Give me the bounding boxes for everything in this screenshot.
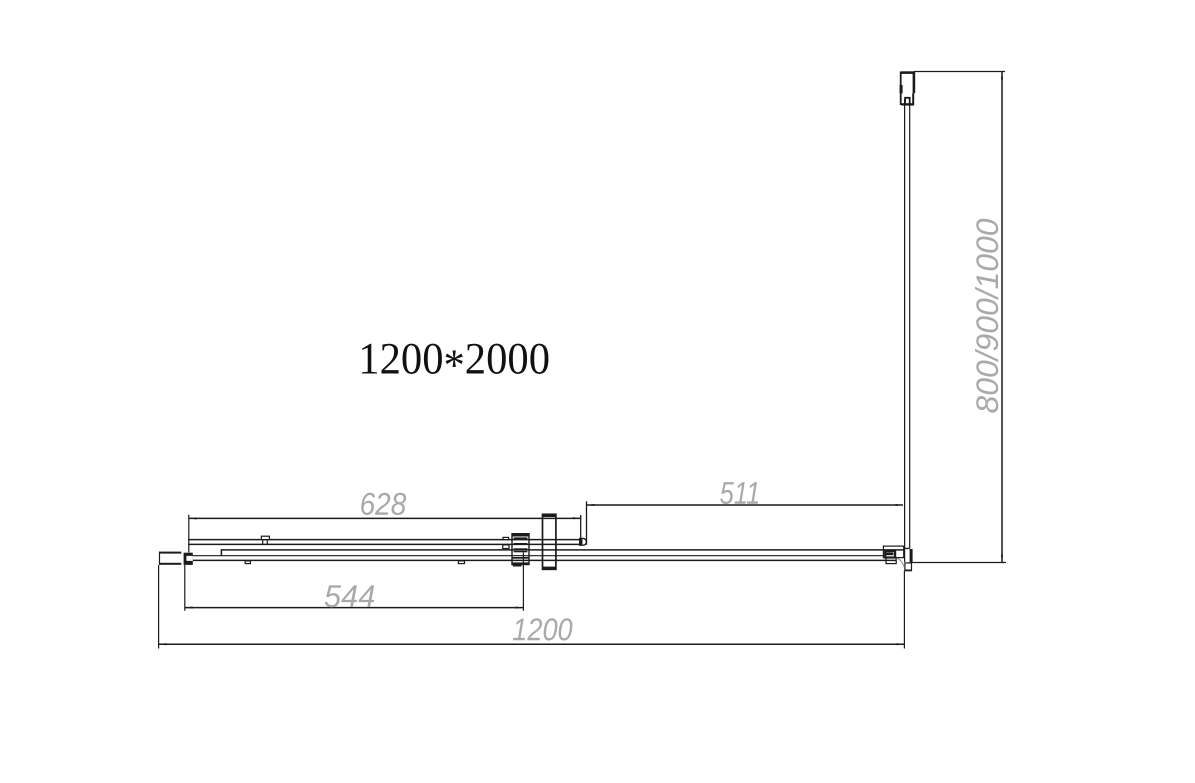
svg-text:544: 544 bbox=[324, 578, 376, 614]
svg-text:511: 511 bbox=[720, 475, 761, 511]
svg-text:1200: 1200 bbox=[512, 611, 573, 647]
svg-text:1200*2000: 1200*2000 bbox=[358, 333, 550, 390]
svg-text:800/900/1000: 800/900/1000 bbox=[969, 218, 1005, 413]
svg-text:628: 628 bbox=[360, 486, 407, 522]
